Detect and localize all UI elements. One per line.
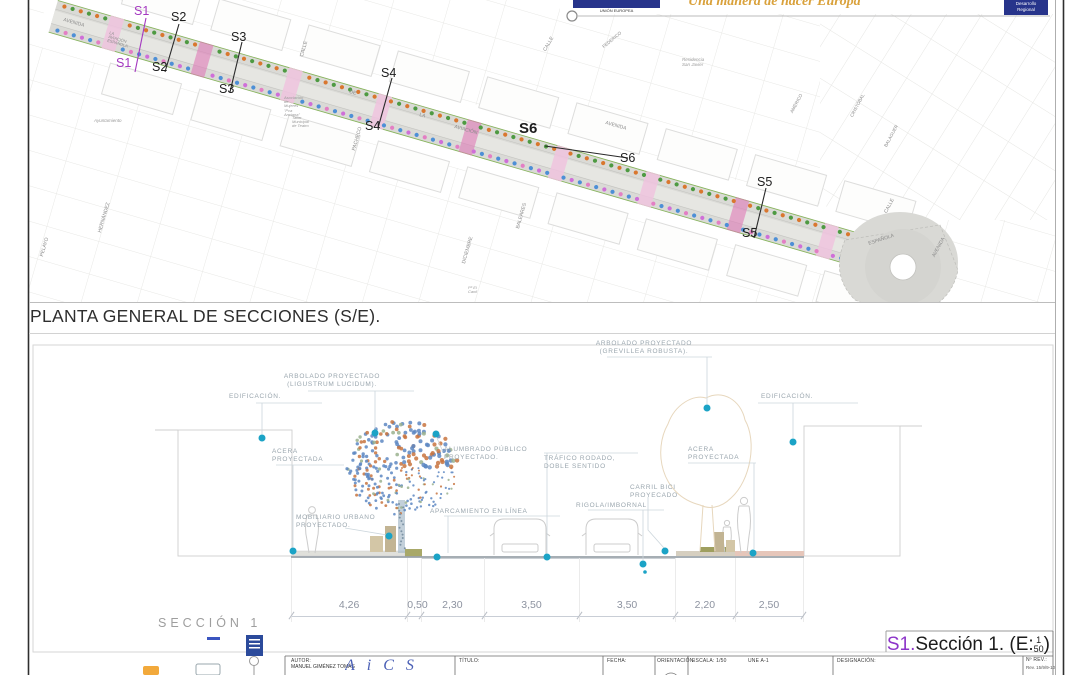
section-marker-s1: S1 bbox=[134, 5, 149, 18]
section-sign bbox=[207, 635, 263, 675]
dimension-value: 2,30 bbox=[421, 599, 484, 611]
caption-close: ) bbox=[1044, 634, 1050, 655]
callout-label: MOBILIARIO URBANO PROYECTADO. bbox=[296, 514, 402, 531]
section-marker-s4: S4 bbox=[381, 67, 396, 80]
plan-title: PLANTA GENERAL DE SECCIONES (S/E). bbox=[30, 306, 381, 327]
feder-line2: Regional bbox=[1004, 7, 1048, 13]
section-marker-s1: S1 bbox=[116, 57, 131, 70]
section-marker-s6: S6 bbox=[519, 121, 537, 136]
street-label: Asociación de Mujeres "Pca Anciana" bbox=[284, 96, 303, 117]
section-marker-s3: S3 bbox=[231, 31, 246, 44]
callout-label: TRÁFICO RODADO, DOBLE SENTIDO bbox=[544, 455, 644, 472]
plan-map bbox=[27, 0, 1055, 322]
dimension-value: 4,26 bbox=[291, 599, 407, 611]
caption-scale-fraction: 150 bbox=[1034, 636, 1044, 653]
tree-projected bbox=[345, 420, 459, 553]
footer-logos bbox=[143, 664, 220, 675]
street-label: Taller Municipal de Teatro bbox=[292, 116, 309, 129]
sheet-canvas bbox=[0, 0, 1080, 675]
eu-logo-caption: UNIÓN EUROPEA bbox=[573, 8, 660, 13]
section-caption: S1.Sección 1. (E:150) bbox=[820, 634, 1050, 656]
section-marker-s5: S5 bbox=[742, 227, 757, 240]
street-label: Residencia San Javier bbox=[682, 58, 704, 67]
callout-label: ARBOLADO PROYECTADO (GREVILLEA ROBUSTA). bbox=[580, 340, 708, 357]
escala-value: ESCALA: 1/50 bbox=[692, 658, 727, 664]
section-name-label: SECCIÓN 1 bbox=[158, 616, 261, 630]
car-outlines bbox=[490, 519, 642, 555]
callout-label: APARCAMIENTO EN LÍNEA bbox=[430, 508, 564, 516]
street-furniture bbox=[370, 526, 735, 552]
designacion-label: DESIGNACIÓN: bbox=[837, 658, 876, 664]
dimension-value: 3,50 bbox=[484, 599, 580, 611]
dimension-value: 0,50 bbox=[407, 599, 421, 611]
consultant-logo-letters: AiCS bbox=[345, 657, 455, 675]
callout-label: ALUMBRADO PÚBLICO PROYECTADO. bbox=[444, 446, 556, 463]
eu-flag-logo bbox=[573, 0, 660, 8]
callout-label: CARRIL BICI PROYECADO bbox=[630, 484, 694, 501]
europe-slogan: Una manera de hacer Europa bbox=[688, 0, 938, 8]
callout-label: EDIFICACIÓN. bbox=[229, 393, 299, 401]
section-marker-s5: S5 bbox=[757, 176, 772, 189]
feder-logo: Desarrollo Regional bbox=[1004, 0, 1048, 15]
street-label: Pº El Canil bbox=[468, 286, 477, 294]
fecha-label: FECHA: bbox=[607, 658, 627, 664]
caption-text: Sección 1. (E: bbox=[915, 634, 1033, 655]
callout-label: EDIFICACIÓN. bbox=[761, 393, 831, 401]
dimension-value: 2,50 bbox=[735, 599, 803, 611]
formato-value: UNE A-1 bbox=[748, 658, 769, 664]
dimension-value: 2,20 bbox=[675, 599, 735, 611]
titulo-label: TÍTULO: bbox=[459, 658, 480, 664]
callout-label: ARBOLADO PROYECTADO (LIGUSTRUM LUCIDUM). bbox=[268, 373, 396, 390]
callout-label: ACERA PROYECTADA bbox=[272, 448, 332, 465]
rev-value: Rev. 15/9/9-10 bbox=[1026, 665, 1055, 670]
nrev-label: Nº REV.: bbox=[1026, 657, 1047, 663]
orientacion-label: ORIENTACIÓN: bbox=[657, 658, 695, 664]
dimension-baseline bbox=[291, 616, 803, 617]
drawing-sheet: UNIÓN EUROPEA Una manera de hacer Europa… bbox=[0, 0, 1080, 675]
callout-label: ACERA PROYECTADA bbox=[688, 446, 748, 463]
callout-label: RIGOLA/IMBORNAL bbox=[576, 502, 672, 510]
street-label: Ayuntamiento bbox=[94, 119, 121, 124]
section-marker-s2: S2 bbox=[152, 61, 167, 74]
section-marker-s4: S4 bbox=[365, 120, 380, 133]
dimension-value: 3,50 bbox=[579, 599, 675, 611]
section-marker-s2: S2 bbox=[171, 11, 186, 24]
caption-s1: S1. bbox=[887, 634, 916, 655]
section-marker-s6: S6 bbox=[620, 152, 635, 165]
section-marker-s3: S3 bbox=[219, 83, 234, 96]
